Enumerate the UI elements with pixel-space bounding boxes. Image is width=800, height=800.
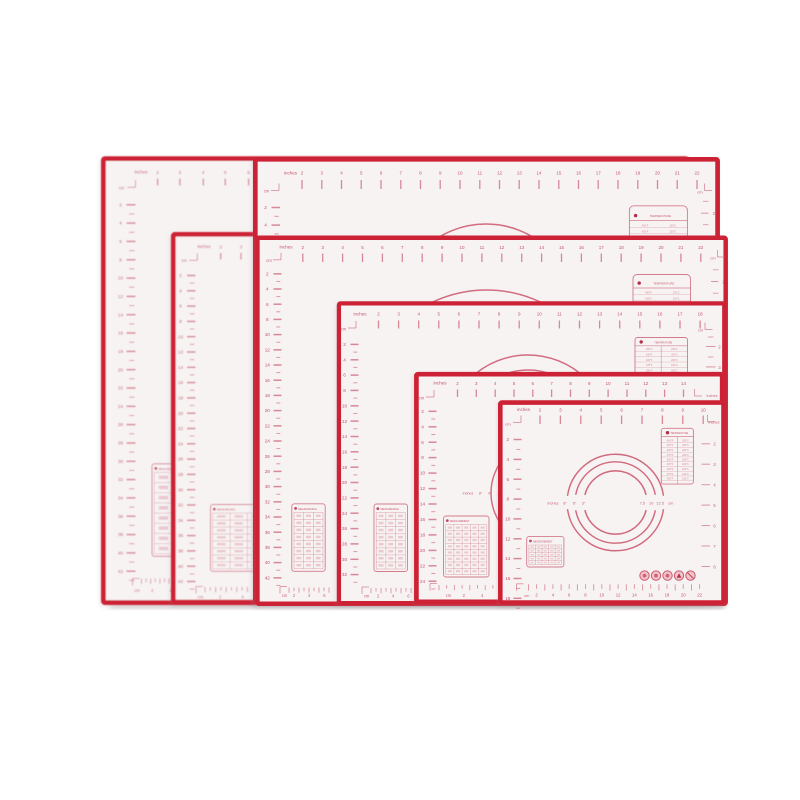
svg-text:6: 6 [506,477,509,482]
svg-text:18: 18 [505,596,511,601]
svg-text:275°F: 275°F [667,473,674,476]
svg-text:250°F: 250°F [667,478,674,481]
svg-text:cm: cm [524,593,530,598]
svg-text:425°F: 425°F [667,444,674,447]
svg-text:cm: cm [668,500,673,505]
svg-text:6": 6" [573,500,577,505]
svg-text:3": 3" [582,500,586,505]
svg-text:22: 22 [697,592,702,597]
svg-text:200°C: 200°C [682,449,689,452]
svg-text:160°C: 160°C [682,463,689,466]
svg-text:14: 14 [632,592,637,597]
svg-text:8: 8 [506,497,509,502]
svg-text:400°F: 400°F [667,449,674,452]
svg-text:2: 2 [506,437,509,442]
svg-text:350°F: 350°F [667,459,674,462]
svg-text:cm: cm [505,422,511,427]
svg-text:20: 20 [681,592,686,597]
svg-text:150°C: 150°C [682,468,689,471]
svg-text:4: 4 [506,457,509,462]
svg-text:inches: inches [517,407,531,412]
svg-text:18: 18 [665,592,670,597]
svg-text:16: 16 [648,592,653,597]
svg-text:220°C: 220°C [682,444,689,447]
svg-text:8": 8" [563,500,567,505]
svg-text:TEMPERATURE: TEMPERATURE [670,432,688,435]
svg-text:16: 16 [505,576,511,581]
svg-text:10: 10 [701,407,707,412]
svg-text:inches: inches [709,421,720,425]
svg-text:12.5: 12.5 [656,500,664,505]
svg-text:10: 10 [505,517,511,522]
svg-text:325°F: 325°F [667,463,674,466]
svg-text:10: 10 [599,592,604,597]
svg-text:180°C: 180°C [682,459,689,462]
svg-text:MEASUREMENT: MEASUREMENT [533,540,553,543]
svg-text:450°F: 450°F [667,440,674,443]
svg-text:120°C: 120°C [682,478,689,481]
svg-text:190°C: 190°C [682,454,689,457]
svg-text:12: 12 [505,536,511,541]
svg-text:230°C: 230°C [682,440,689,443]
svg-text:140°C: 140°C [682,473,689,476]
svg-text:7.5: 7.5 [640,500,645,505]
svg-text:375°F: 375°F [667,454,674,457]
svg-text:12: 12 [616,592,621,597]
svg-text:300°F: 300°F [667,468,674,471]
svg-text:14: 14 [505,556,511,561]
svg-text:inches: inches [547,500,558,505]
